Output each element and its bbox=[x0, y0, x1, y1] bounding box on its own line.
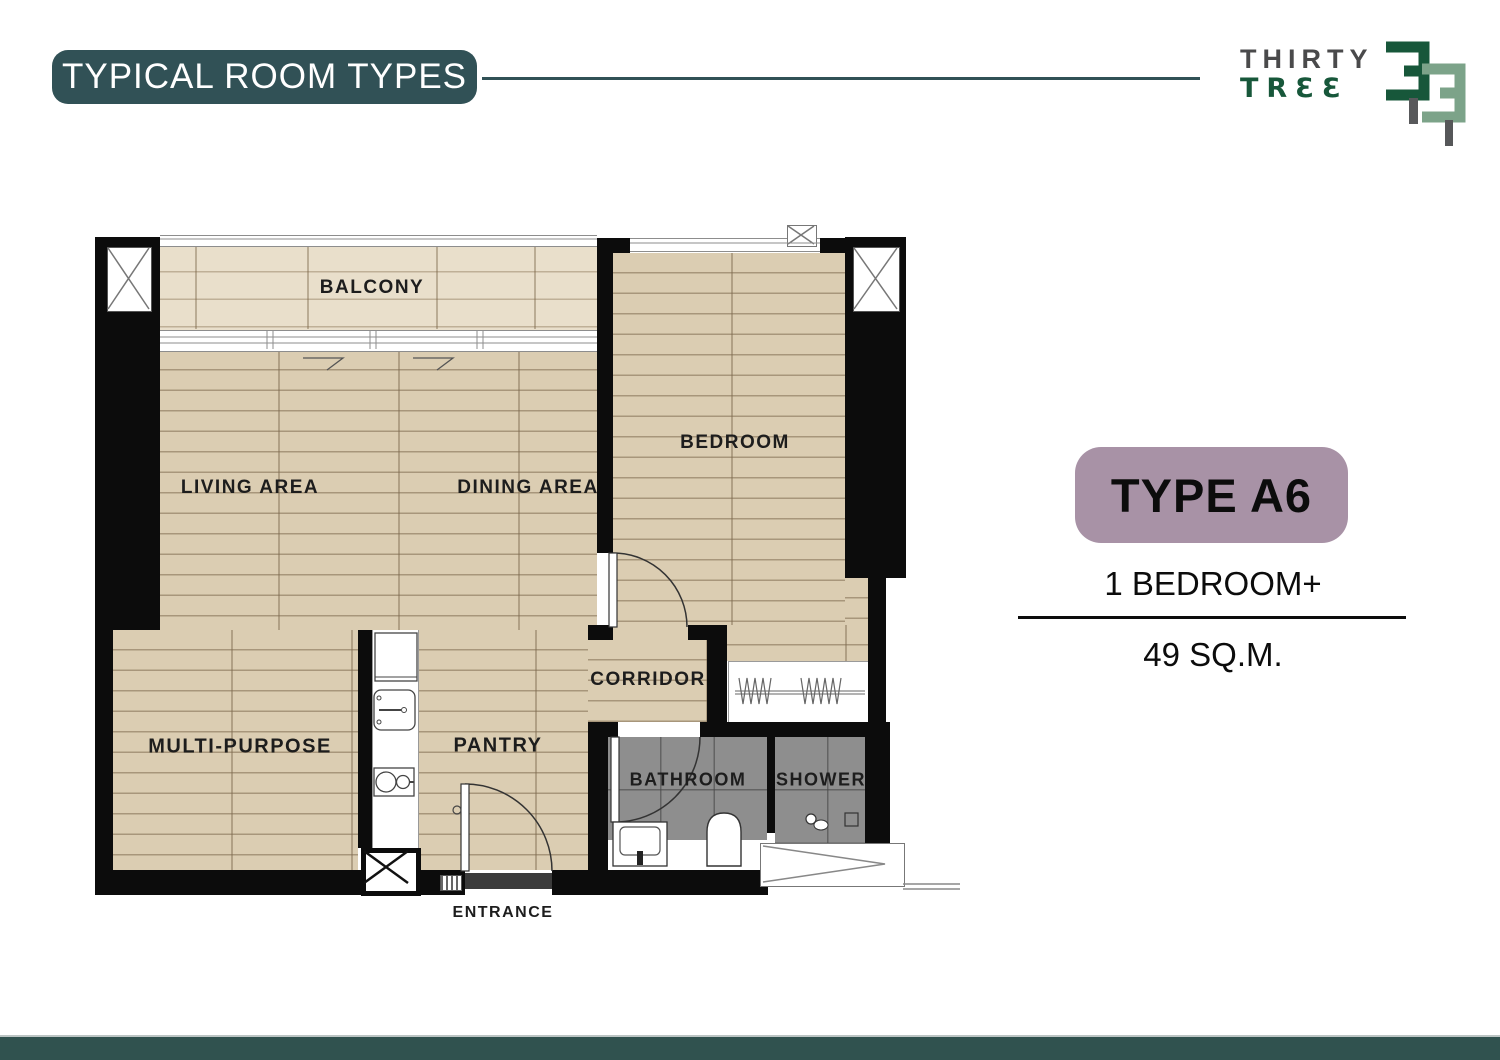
room-label-living: LIVING AREA bbox=[181, 477, 319, 499]
condenser-triangle bbox=[763, 846, 960, 889]
kitchen-fixtures bbox=[374, 633, 417, 796]
room-label-entrance: ENTRANCE bbox=[453, 904, 554, 922]
kitchen-shaft-cross bbox=[364, 851, 408, 883]
toilet-icon bbox=[707, 813, 741, 866]
unit-area-label: 49 SQ.M. bbox=[1018, 636, 1408, 674]
room-label-shower: SHOWER bbox=[776, 770, 866, 791]
entrance-door-arc bbox=[465, 784, 552, 871]
shower-drain-icon bbox=[845, 813, 858, 826]
stove-icon bbox=[374, 768, 414, 796]
bathroom-fixtures bbox=[613, 813, 858, 866]
unit-type-badge: TYPE A6 bbox=[1075, 447, 1348, 543]
cross-lines bbox=[108, 226, 897, 309]
window-tracks bbox=[160, 239, 820, 349]
bath-sink-tap-icon bbox=[637, 851, 643, 865]
unit-bedrooms-label: 1 BEDROOM+ bbox=[1018, 565, 1408, 603]
footer-bar bbox=[0, 1035, 1500, 1060]
unit-divider-line bbox=[1018, 616, 1406, 619]
room-label-dining: DINING AREA bbox=[457, 477, 598, 499]
room-label-balcony: BALCONY bbox=[320, 277, 424, 299]
bathroom-door-leaf bbox=[611, 737, 619, 822]
bedroom-door-arc bbox=[613, 553, 687, 627]
brand-logo: THIRTY TRƐƐ bbox=[1240, 46, 1470, 146]
unit-type-label: TYPE A6 bbox=[1111, 468, 1312, 523]
wardrobe-hangers bbox=[735, 678, 865, 704]
page: TYPICAL ROOM TYPES THIRTY TRƐƐ TYPE A6 1… bbox=[0, 0, 1500, 1060]
entrance-door-leaf bbox=[461, 784, 469, 871]
room-label-bathroom: BATHROOM bbox=[630, 770, 747, 791]
slider-direction-marks bbox=[303, 358, 453, 370]
header-divider-line bbox=[482, 77, 1200, 80]
room-label-corridor: CORRIDOR bbox=[590, 669, 705, 691]
room-label-pantry: PANTRY bbox=[454, 735, 543, 758]
logo-33-tree-icon bbox=[1378, 40, 1474, 152]
floor-plan: BALCONY LIVING AREA DINING AREA BEDROOM … bbox=[95, 225, 965, 925]
fridge-icon bbox=[375, 633, 417, 681]
bedroom-door-leaf bbox=[609, 553, 617, 627]
room-label-multipurpose: MULTI-PURPOSE bbox=[148, 736, 332, 759]
page-title-badge: TYPICAL ROOM TYPES bbox=[52, 50, 477, 104]
entrance-door-handle-icon bbox=[453, 806, 461, 814]
page-title: TYPICAL ROOM TYPES bbox=[62, 57, 467, 97]
room-label-bedroom: BEDROOM bbox=[680, 432, 790, 454]
plan-symbols bbox=[95, 225, 965, 925]
